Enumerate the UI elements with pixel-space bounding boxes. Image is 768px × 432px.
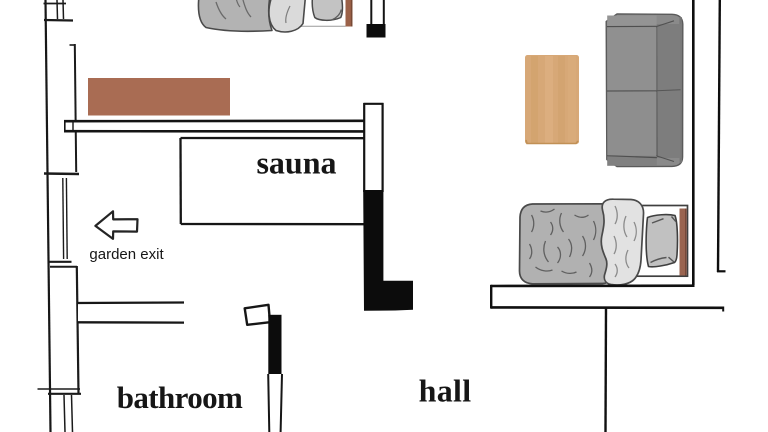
svg-text:sauna: sauna — [256, 145, 336, 181]
svg-text:bathroom: bathroom — [117, 380, 243, 415]
svg-text:garden exit: garden exit — [89, 246, 164, 263]
svg-text:hall: hall — [419, 373, 472, 409]
